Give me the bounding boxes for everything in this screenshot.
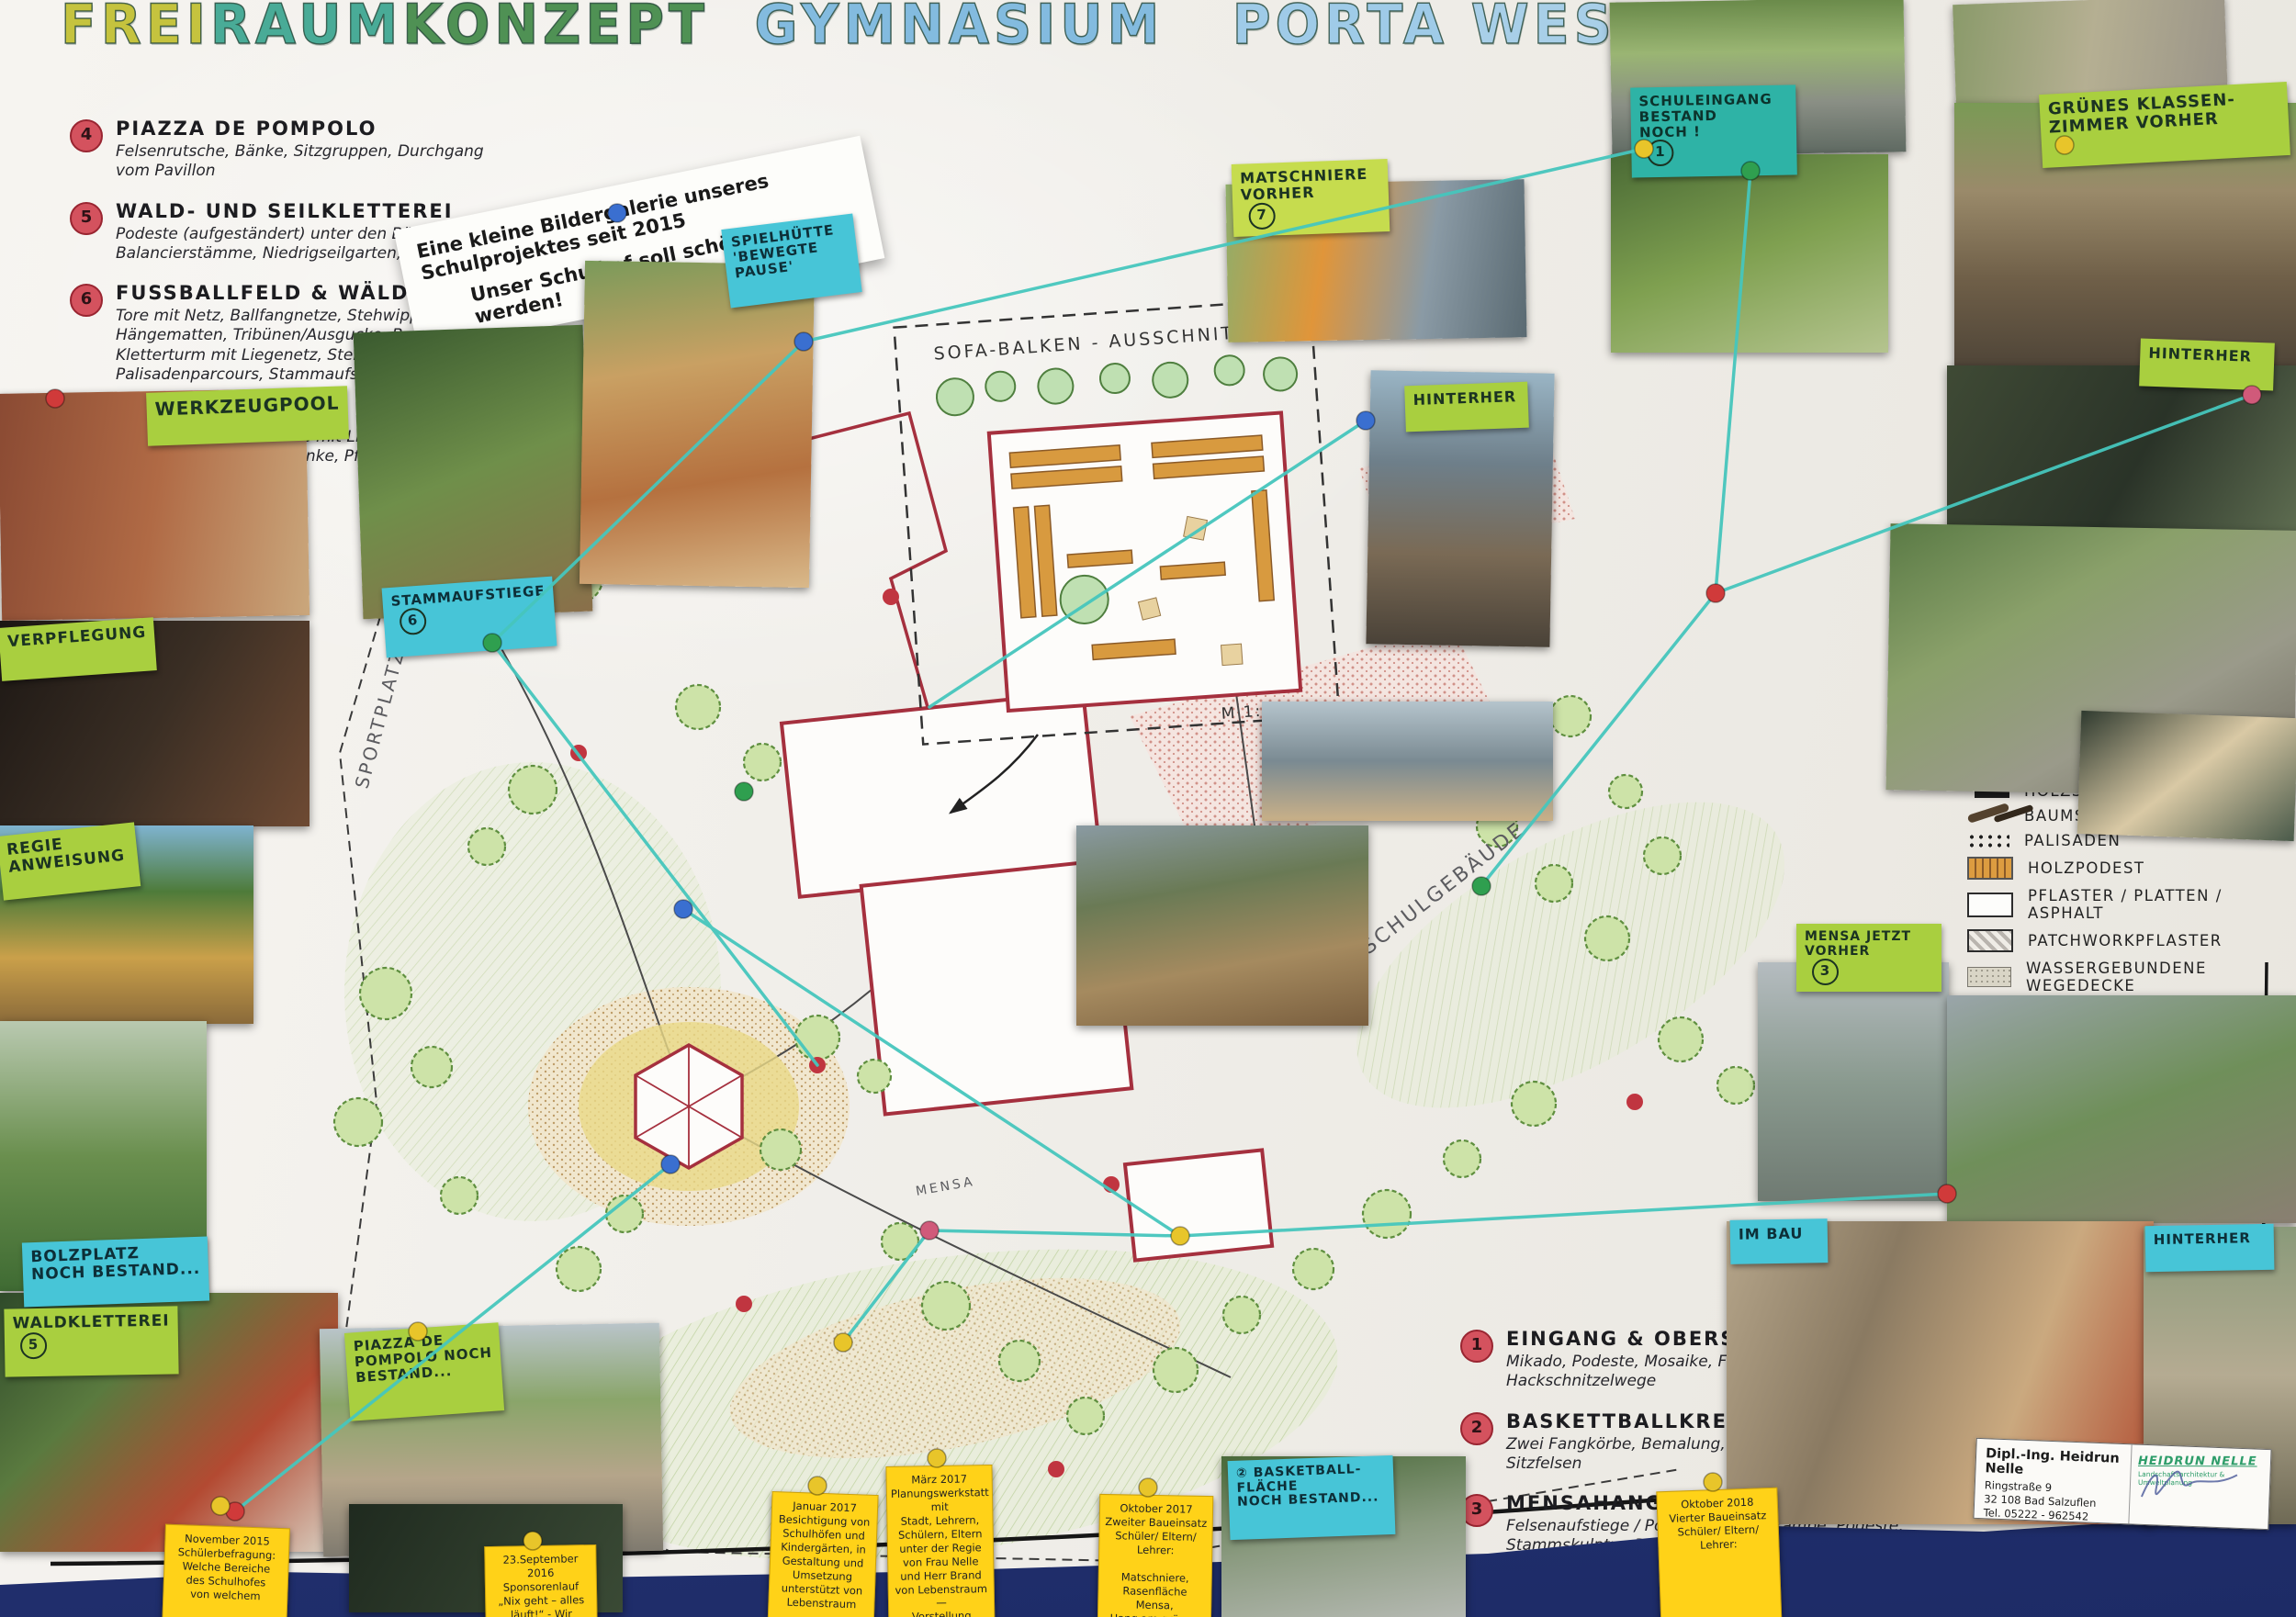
pin-icon (834, 1333, 852, 1352)
pin-icon (523, 1532, 542, 1550)
pin-icon (1356, 411, 1375, 430)
pin-icon (674, 900, 692, 918)
pin-icon (1938, 1185, 1956, 1203)
pin-icon (1635, 140, 1653, 158)
pinboard: SOFA-BALKEN - AUSSCHNITT (0, 0, 2296, 1617)
pin-icon (920, 1221, 939, 1240)
pin-icon (794, 332, 813, 351)
pin-icon (483, 634, 501, 652)
pin-icon (608, 204, 626, 222)
yarn-strings (0, 0, 2296, 1617)
pin-icon (1139, 1478, 1157, 1497)
pin-icon (1741, 162, 1760, 180)
pin-icon (2055, 136, 2074, 154)
pin-icon (46, 389, 64, 408)
pin-icon (1171, 1227, 1189, 1245)
string-lines (235, 149, 2252, 1511)
pin-icon (1704, 1473, 1722, 1491)
pin-icon (661, 1155, 680, 1173)
pin-icon (1706, 584, 1725, 602)
push-pins (46, 136, 2261, 1550)
pin-icon (735, 782, 753, 801)
pin-icon (1472, 877, 1491, 895)
pin-icon (808, 1477, 827, 1495)
pin-icon (2243, 386, 2261, 404)
pin-icon (211, 1497, 230, 1515)
pin-icon (928, 1449, 946, 1467)
pin-icon (409, 1322, 427, 1341)
